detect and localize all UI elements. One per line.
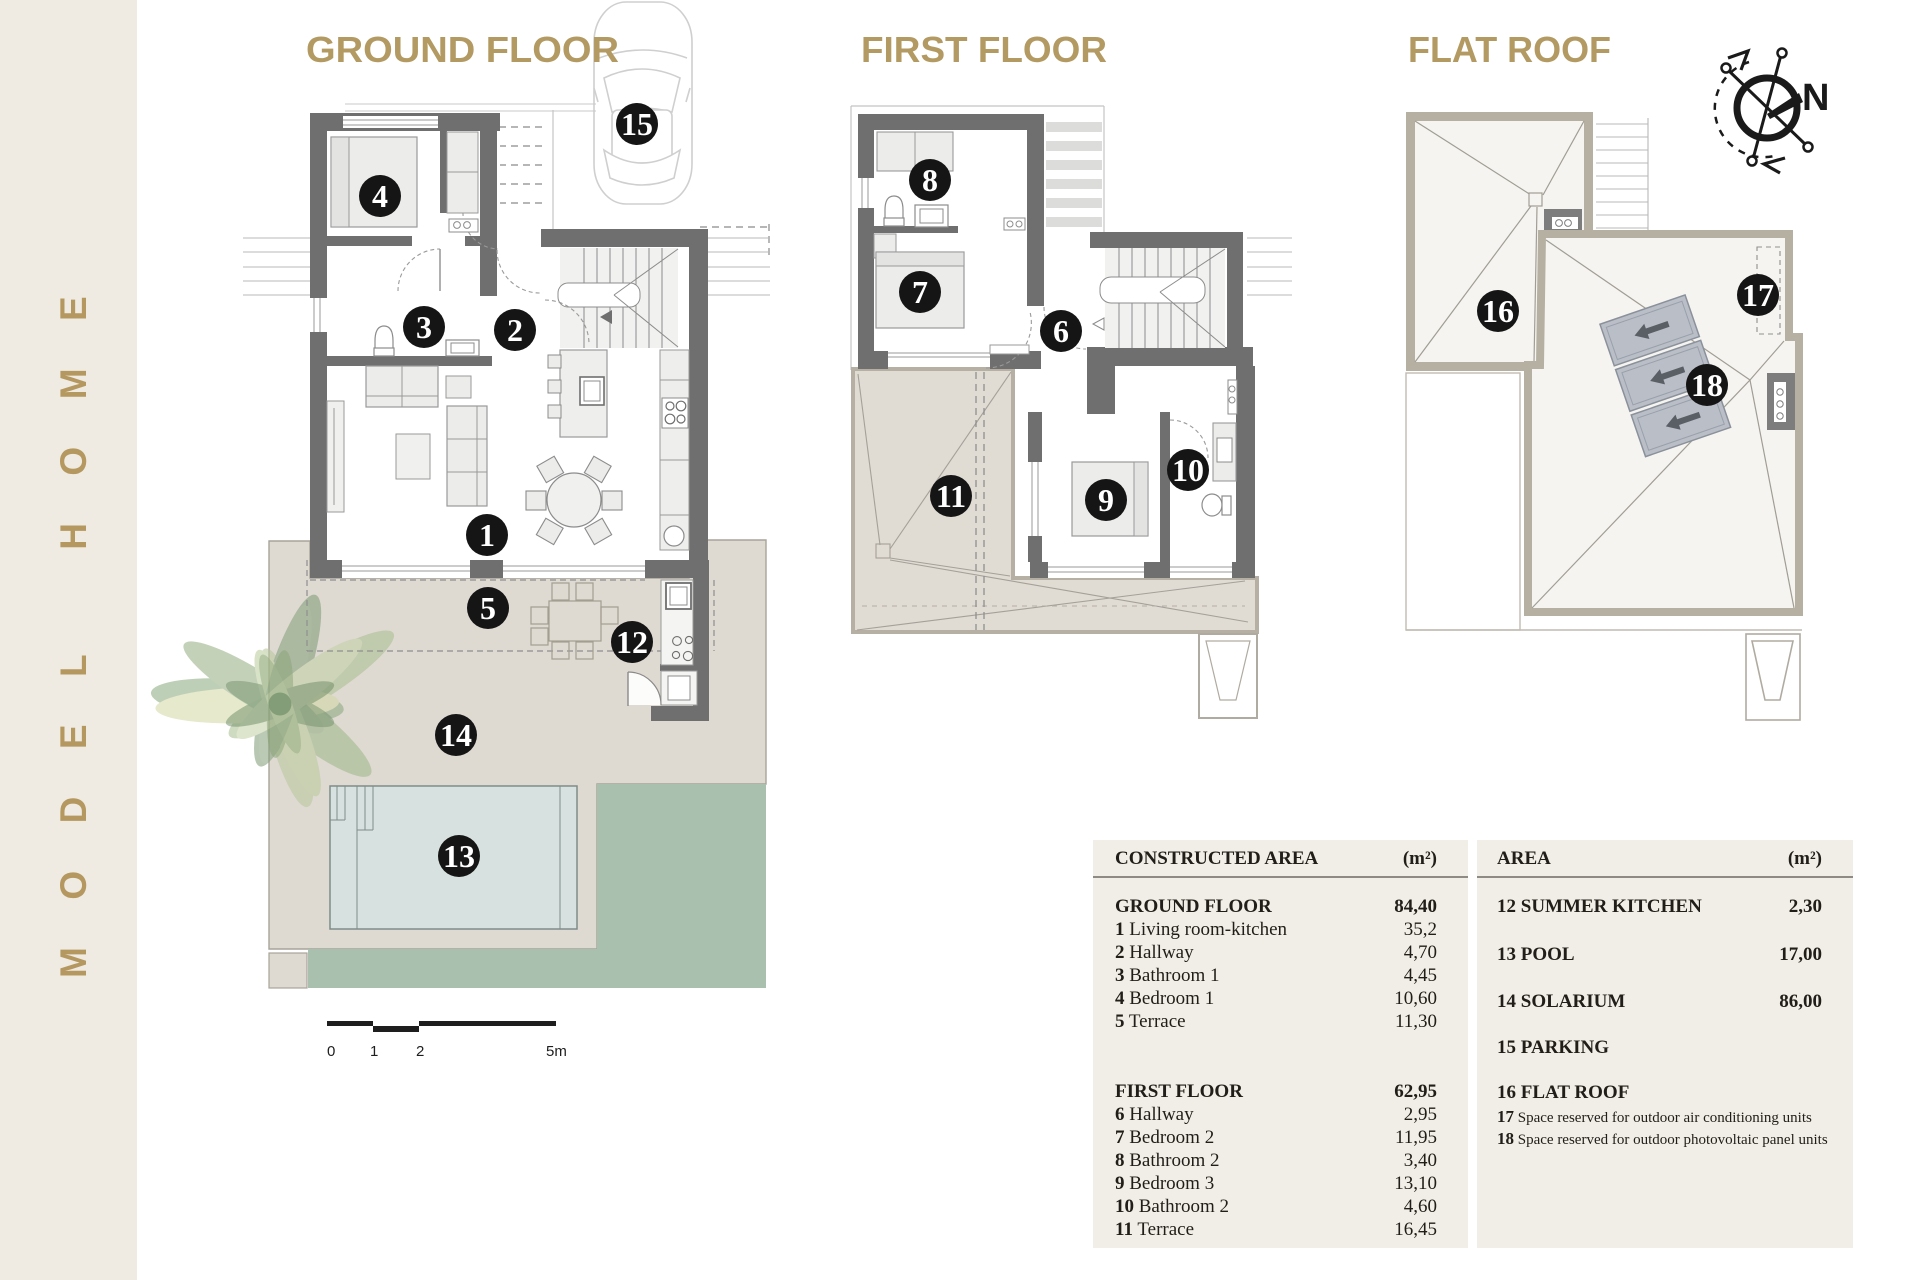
- svg-text:0: 0: [327, 1043, 335, 1060]
- svg-text:17: 17: [1742, 277, 1774, 313]
- svg-text:11 Terrace: 11 Terrace: [1115, 1219, 1194, 1240]
- svg-text:13,10: 13,10: [1394, 1173, 1437, 1194]
- svg-text:MODEL HOME: MODEL HOME: [53, 249, 94, 978]
- svg-text:35,2: 35,2: [1404, 919, 1437, 940]
- svg-text:2,30: 2,30: [1789, 896, 1822, 917]
- svg-text:AREA: AREA: [1497, 848, 1551, 869]
- svg-text:17 Space reserved for outdoor: 17 Space reserved for outdoor air condit…: [1497, 1107, 1812, 1126]
- svg-text:62,95: 62,95: [1394, 1081, 1437, 1102]
- svg-text:84,40: 84,40: [1394, 896, 1437, 917]
- svg-text:11,95: 11,95: [1395, 1127, 1437, 1148]
- svg-text:11,30: 11,30: [1395, 1011, 1437, 1032]
- svg-text:10: 10: [1172, 452, 1204, 488]
- svg-text:(m²): (m²): [1788, 848, 1822, 869]
- svg-text:5m: 5m: [546, 1043, 567, 1060]
- svg-text:GROUND FLOOR: GROUND FLOOR: [306, 29, 619, 70]
- svg-text:2: 2: [416, 1043, 424, 1060]
- svg-text:16 FLAT ROOF: 16 FLAT ROOF: [1497, 1082, 1629, 1103]
- svg-text:16,45: 16,45: [1394, 1219, 1437, 1240]
- svg-text:8: 8: [922, 162, 938, 198]
- svg-text:GROUND FLOOR: GROUND FLOOR: [1115, 896, 1272, 917]
- svg-text:6: 6: [1053, 313, 1069, 349]
- svg-text:4,70: 4,70: [1404, 942, 1437, 963]
- svg-text:16: 16: [1482, 293, 1514, 329]
- svg-text:8 Bathroom 2: 8 Bathroom 2: [1115, 1150, 1220, 1171]
- svg-text:13: 13: [443, 838, 475, 874]
- svg-text:N: N: [1802, 77, 1829, 119]
- svg-text:11: 11: [936, 478, 966, 514]
- svg-text:17,00: 17,00: [1779, 944, 1822, 965]
- svg-text:10,60: 10,60: [1394, 988, 1437, 1009]
- svg-text:18 Space reserved for outdoor: 18 Space reserved for outdoor photovolta…: [1497, 1129, 1828, 1148]
- svg-text:FLAT ROOF: FLAT ROOF: [1408, 29, 1611, 70]
- svg-text:9: 9: [1098, 482, 1114, 518]
- svg-text:15 PARKING: 15 PARKING: [1497, 1037, 1609, 1058]
- svg-text:5: 5: [480, 590, 496, 626]
- svg-text:CONSTRUCTED AREA: CONSTRUCTED AREA: [1115, 848, 1319, 869]
- svg-text:15: 15: [621, 106, 653, 142]
- svg-text:14: 14: [440, 717, 472, 753]
- svg-text:2,95: 2,95: [1404, 1104, 1437, 1125]
- svg-text:1: 1: [479, 517, 495, 553]
- svg-text:9 Bedroom 3: 9 Bedroom 3: [1115, 1173, 1214, 1194]
- svg-text:FIRST FLOOR: FIRST FLOOR: [861, 29, 1107, 70]
- svg-text:4,45: 4,45: [1404, 965, 1437, 986]
- svg-text:4,60: 4,60: [1404, 1196, 1437, 1217]
- svg-text:6 Hallway: 6 Hallway: [1115, 1104, 1194, 1125]
- svg-text:3: 3: [416, 309, 432, 345]
- svg-text:7 Bedroom 2: 7 Bedroom 2: [1115, 1127, 1214, 1148]
- svg-text:4 Bedroom 1: 4 Bedroom 1: [1115, 988, 1214, 1009]
- svg-text:3 Bathroom 1: 3 Bathroom 1: [1115, 965, 1220, 986]
- svg-text:FIRST FLOOR: FIRST FLOOR: [1115, 1081, 1243, 1102]
- svg-text:13 POOL: 13 POOL: [1497, 944, 1575, 965]
- svg-text:12 SUMMER KITCHEN: 12 SUMMER KITCHEN: [1497, 896, 1702, 917]
- svg-text:7: 7: [912, 274, 928, 310]
- svg-text:86,00: 86,00: [1779, 991, 1822, 1012]
- svg-text:2 Hallway: 2 Hallway: [1115, 942, 1194, 963]
- svg-text:1: 1: [370, 1043, 378, 1060]
- svg-text:5 Terrace: 5 Terrace: [1115, 1011, 1186, 1032]
- svg-text:3,40: 3,40: [1404, 1150, 1437, 1171]
- svg-text:2: 2: [507, 312, 523, 348]
- svg-text:18: 18: [1691, 367, 1723, 403]
- svg-text:1 Living room-kitchen: 1 Living room-kitchen: [1115, 919, 1288, 940]
- svg-text:12: 12: [616, 624, 648, 660]
- svg-text:14 SOLARIUM: 14 SOLARIUM: [1497, 991, 1625, 1012]
- svg-text:4: 4: [372, 178, 388, 214]
- svg-text:(m²): (m²): [1403, 848, 1437, 869]
- svg-text:10 Bathroom 2: 10 Bathroom 2: [1115, 1196, 1229, 1217]
